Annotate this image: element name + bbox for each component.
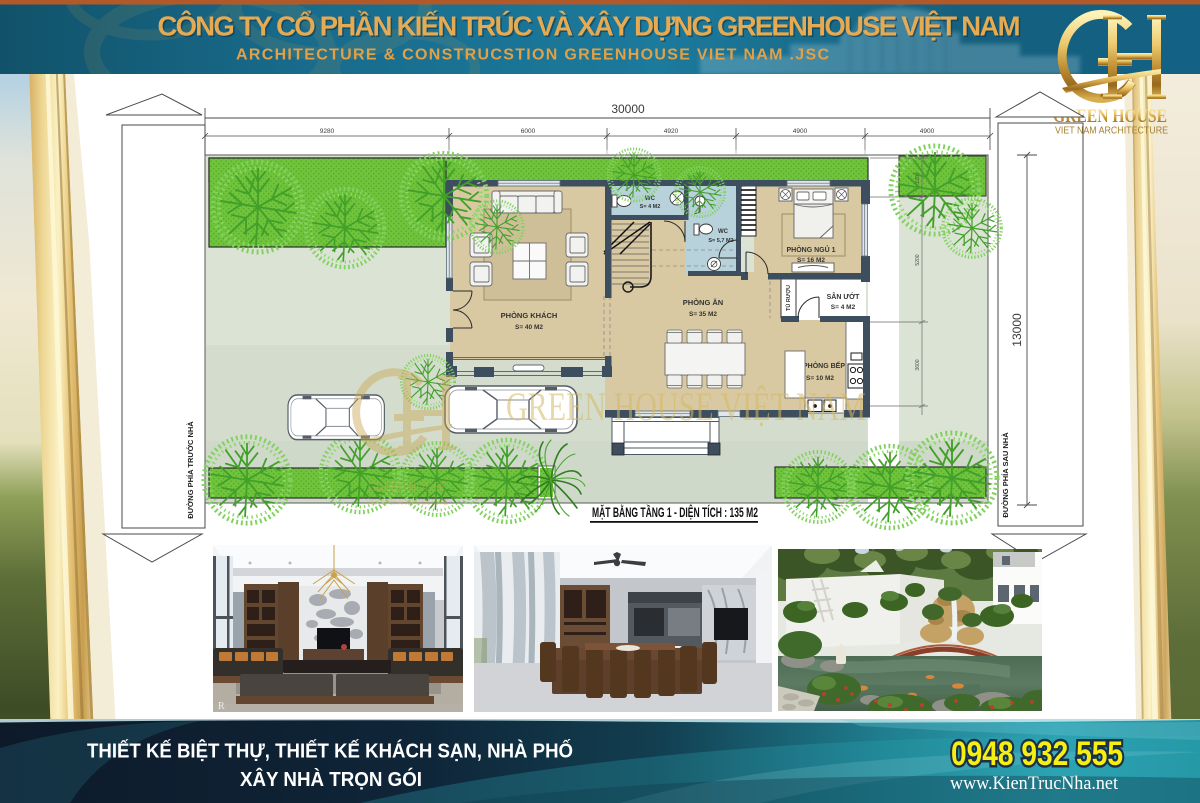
svg-text:THIẾT KẾ BIỆT THỰ, THIẾT KẾ KH: THIẾT KẾ BIỆT THỰ, THIẾT KẾ KHÁCH SẠN, N… [87, 739, 573, 763]
svg-text:9280: 9280 [320, 128, 335, 135]
svg-text:5200: 5200 [915, 254, 921, 265]
svg-text:0948 932 555: 0948 932 555 [951, 735, 1123, 773]
svg-text:6000: 6000 [521, 128, 536, 135]
svg-text:PHÒNG ĂN: PHÒNG ĂN [683, 298, 723, 307]
svg-text:3600: 3600 [915, 359, 921, 370]
svg-text:4900: 4900 [793, 128, 808, 135]
svg-text:S= 4 M2: S= 4 M2 [831, 304, 856, 311]
svg-text:GREEN HOUSE: GREEN HOUSE [368, 480, 446, 495]
svg-text:ĐƯỜNG PHÍA SAU NHÀ: ĐƯỜNG PHÍA SAU NHÀ [1001, 432, 1010, 518]
svg-text:30000: 30000 [611, 102, 645, 116]
svg-text:GREEN HOUSE VIỆT NAM: GREEN HOUSE VIỆT NAM [506, 384, 866, 429]
svg-text:S= 10 M2: S= 10 M2 [806, 375, 834, 382]
svg-text:13000: 13000 [1010, 313, 1024, 347]
svg-text:XÂY NHÀ TRỌN GÓI: XÂY NHÀ TRỌN GÓI [240, 767, 422, 791]
svg-text:CÔNG TY CỔ PHẦN KIẾN TRÚC VÀ X: CÔNG TY CỔ PHẦN KIẾN TRÚC VÀ XÂY DỰNG GR… [158, 10, 1021, 42]
svg-text:S= 16 M2: S= 16 M2 [797, 257, 825, 264]
svg-text:SÂN ƯỚT: SÂN ƯỚT [827, 292, 861, 301]
svg-text:VIET NAM ARCHITECTURE: VIET NAM ARCHITECTURE [1055, 126, 1168, 137]
svg-text:S= 40 M2: S= 40 M2 [515, 324, 543, 331]
svg-text:PHÒNG KHÁCH: PHÒNG KHÁCH [501, 311, 558, 320]
svg-text:www.KienTrucNha.net: www.KienTrucNha.net [950, 773, 1119, 794]
svg-text:S= 4 M2: S= 4 M2 [640, 204, 661, 210]
svg-text:R: R [218, 701, 225, 712]
svg-text:4900: 4900 [920, 128, 935, 135]
svg-text:TỦ RƯỢU: TỦ RƯỢU [785, 285, 792, 311]
svg-text:PHÒNG NGỦ 1: PHÒNG NGỦ 1 [786, 245, 835, 254]
svg-text:WC: WC [718, 229, 729, 235]
svg-text:ĐƯỜNG PHÍA TRƯỚC NHÀ: ĐƯỜNG PHÍA TRƯỚC NHÀ [186, 421, 195, 519]
svg-text:ARCHITECTURE & CONSTRUCSTION G: ARCHITECTURE & CONSTRUCSTION GREENHOUSE … [236, 47, 829, 64]
svg-text:MẶT BẰNG TẦNG 1 - DIỆN TÍCH :: MẶT BẰNG TẦNG 1 - DIỆN TÍCH : 135 M2 [592, 505, 758, 520]
svg-text:S= 35 M2: S= 35 M2 [689, 311, 717, 318]
svg-text:4920: 4920 [664, 128, 679, 135]
svg-text:VIET NAM ARCHITECTURE: VIET NAM ARCHITECTURE [366, 498, 448, 507]
